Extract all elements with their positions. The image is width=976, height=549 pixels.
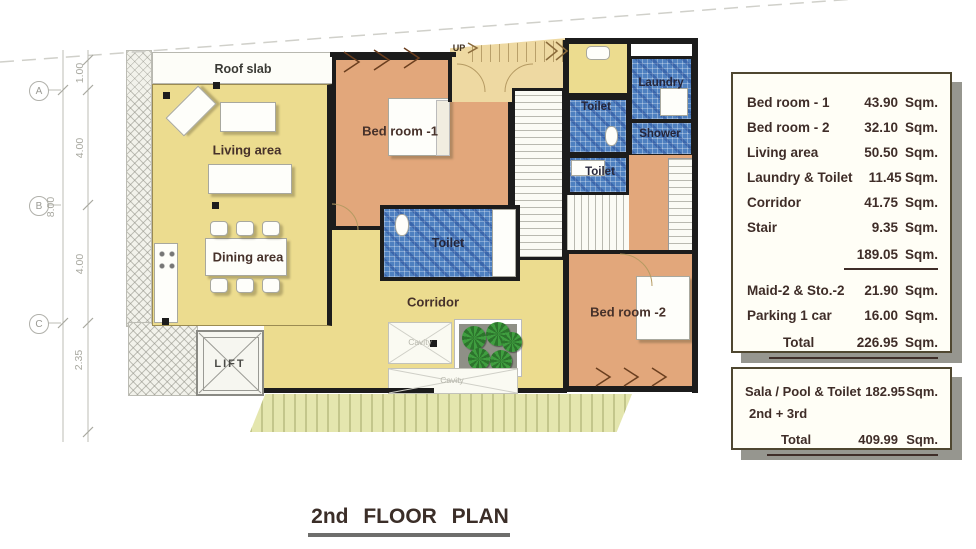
total-row: Total 226.95 Sqm. (769, 330, 938, 359)
total-value: 409.99 (844, 427, 898, 452)
drawing-title: 2nd FLOOR PLAN (306, 505, 514, 529)
subtotal-unit: Sqm. (898, 242, 938, 267)
total-unit: Sqm. (898, 330, 938, 355)
lift-lobby (264, 326, 334, 390)
row-unit: Sqm. (902, 165, 938, 190)
dining-area-label: Dining area (213, 250, 284, 265)
row-label: Bed room - 1 (747, 90, 844, 115)
wc-fixture (605, 126, 618, 146)
row-value: 16.00 (844, 303, 898, 328)
area-table-main: Bed room - 1 43.90 Sqm. Bed room - 2 32.… (731, 72, 952, 353)
note-row: 2nd + 3rd (745, 404, 938, 424)
dimension-label: 2.35 (73, 350, 85, 370)
bedroom-1-label: Bed room -1 (362, 124, 438, 139)
row-value: 43.90 (844, 90, 898, 115)
row-unit: Sqm. (905, 379, 938, 404)
wall-segment (565, 38, 696, 44)
floor-plan-canvas: A B C 1.00 4.00 4.00 2.35 8.00 Roof slab… (0, 0, 976, 549)
subtotal-value: 189.05 (844, 242, 898, 267)
row-unit: Sqm. (898, 190, 938, 215)
dimension-lines (47, 50, 88, 442)
bedroom-2-label: Bed room -2 (590, 305, 666, 320)
table-row: Parking 1 car 16.00 Sqm. (747, 303, 938, 328)
wall-segment (518, 388, 567, 393)
row-label: Living area (747, 140, 844, 165)
closet-column (668, 158, 694, 252)
toilet-center-label: Toilet (432, 236, 464, 250)
total-value: 226.95 (844, 330, 898, 355)
roof-slab-label: Roof slab (215, 62, 272, 76)
washing-machine (660, 88, 688, 116)
total-label: Total (767, 427, 844, 452)
cavity-label: Cavity (440, 375, 464, 385)
column (213, 82, 220, 89)
subtotal-row: 189.05 Sqm. (747, 242, 938, 270)
row-unit: Sqm. (898, 215, 938, 240)
row-unit: Sqm. (898, 278, 938, 303)
cavity-label: Cavity (408, 337, 432, 347)
up-label: UP (453, 43, 466, 53)
area-table-secondary: Sala / Pool & Toilet 182.95 Sqm. 2nd + 3… (731, 367, 952, 450)
column (162, 318, 169, 325)
grid-bubble-a: A (29, 81, 49, 101)
corridor-label: Corridor (407, 295, 459, 310)
table-row: Living area 50.50 Sqm. (747, 140, 938, 165)
row-value: 41.75 (844, 190, 898, 215)
plant (462, 326, 486, 350)
bed-pillow (436, 100, 450, 156)
living-area-label: Living area (213, 143, 282, 158)
row-value: 11.45 (853, 165, 902, 190)
wall-segment (692, 38, 698, 393)
toilet-top-label: Toilet (581, 101, 611, 113)
grid-letter: B (36, 201, 43, 212)
wall-segment (563, 40, 567, 390)
dining-chair (210, 278, 228, 293)
table-row: Sala / Pool & Toilet 182.95 Sqm. (745, 379, 938, 404)
sofa-main (208, 164, 292, 194)
total-unit: Sqm. (898, 427, 938, 452)
row-value: 32.10 (844, 115, 898, 140)
dressing-closets (565, 193, 631, 255)
roof-hatch-bottom-left (128, 322, 198, 396)
dimension-ticks (58, 55, 93, 437)
dining-chair (236, 278, 254, 293)
dimension-label: 1.00 (74, 63, 86, 83)
table-row: Bed room - 1 43.90 Sqm. (747, 90, 938, 115)
table-row: Maid-2 & Sto.-2 21.90 Sqm. (747, 278, 938, 303)
row-unit: Sqm. (898, 140, 938, 165)
grid-bubble-c: C (29, 314, 49, 334)
title-underline (308, 533, 510, 537)
laundry-label: Laundry (638, 77, 683, 89)
row-unit: Sqm. (898, 115, 938, 140)
grid-letter: A (36, 86, 43, 97)
plant (502, 332, 522, 352)
row-label: Bed room - 2 (747, 115, 844, 140)
note-text: 2nd + 3rd (745, 404, 938, 424)
stair-treads (472, 40, 564, 62)
column (212, 202, 219, 209)
plant (468, 348, 490, 370)
row-label: Parking 1 car (747, 303, 844, 328)
dining-chair (236, 221, 254, 236)
row-label: Sala / Pool & Toilet (745, 379, 861, 404)
total-row: Total 409.99 Sqm. (767, 427, 938, 456)
table-row: Stair 9.35 Sqm. (747, 215, 938, 240)
row-label: Maid-2 & Sto.-2 (747, 278, 845, 303)
row-value: 182.95 (861, 379, 905, 404)
kitchen-counter (154, 243, 178, 323)
total-label: Total (769, 330, 844, 355)
dimension-label: 4.00 (74, 254, 86, 274)
row-label: Stair (747, 215, 844, 240)
dimension-label: 4.00 (74, 138, 86, 158)
dining-chair (210, 221, 228, 236)
wall-segment (330, 52, 456, 57)
dining-chair (262, 278, 280, 293)
table-row: Corridor 41.75 Sqm. (747, 190, 938, 215)
shower-label: Shower (639, 128, 681, 140)
table-row: Laundry & Toilet 11.45 Sqm. (747, 165, 938, 190)
lift-label: LIFT (214, 358, 245, 370)
row-value: 9.35 (844, 215, 898, 240)
roof-hatch-left (126, 50, 152, 327)
deck (250, 394, 632, 432)
dimension-label: 8.00 (45, 197, 57, 217)
wall-segment (448, 56, 452, 102)
row-unit: Sqm. (898, 90, 938, 115)
wall-segment (565, 386, 698, 392)
grid-letter: C (35, 319, 42, 330)
wall-segment (264, 388, 434, 393)
row-label: Laundry & Toilet (747, 165, 853, 190)
row-unit: Sqm. (898, 303, 938, 328)
vanity-counter (492, 209, 516, 277)
basin (586, 46, 610, 60)
table-row: Bed room - 2 32.10 Sqm. (747, 115, 938, 140)
sofa-top (220, 102, 276, 132)
column (163, 92, 170, 99)
row-value: 21.90 (845, 278, 899, 303)
toilet-mid-label: Toilet (585, 166, 615, 178)
dining-chair (262, 221, 280, 236)
row-label: Corridor (747, 190, 844, 215)
row-value: 50.50 (844, 140, 898, 165)
wc-fixture (395, 214, 409, 236)
